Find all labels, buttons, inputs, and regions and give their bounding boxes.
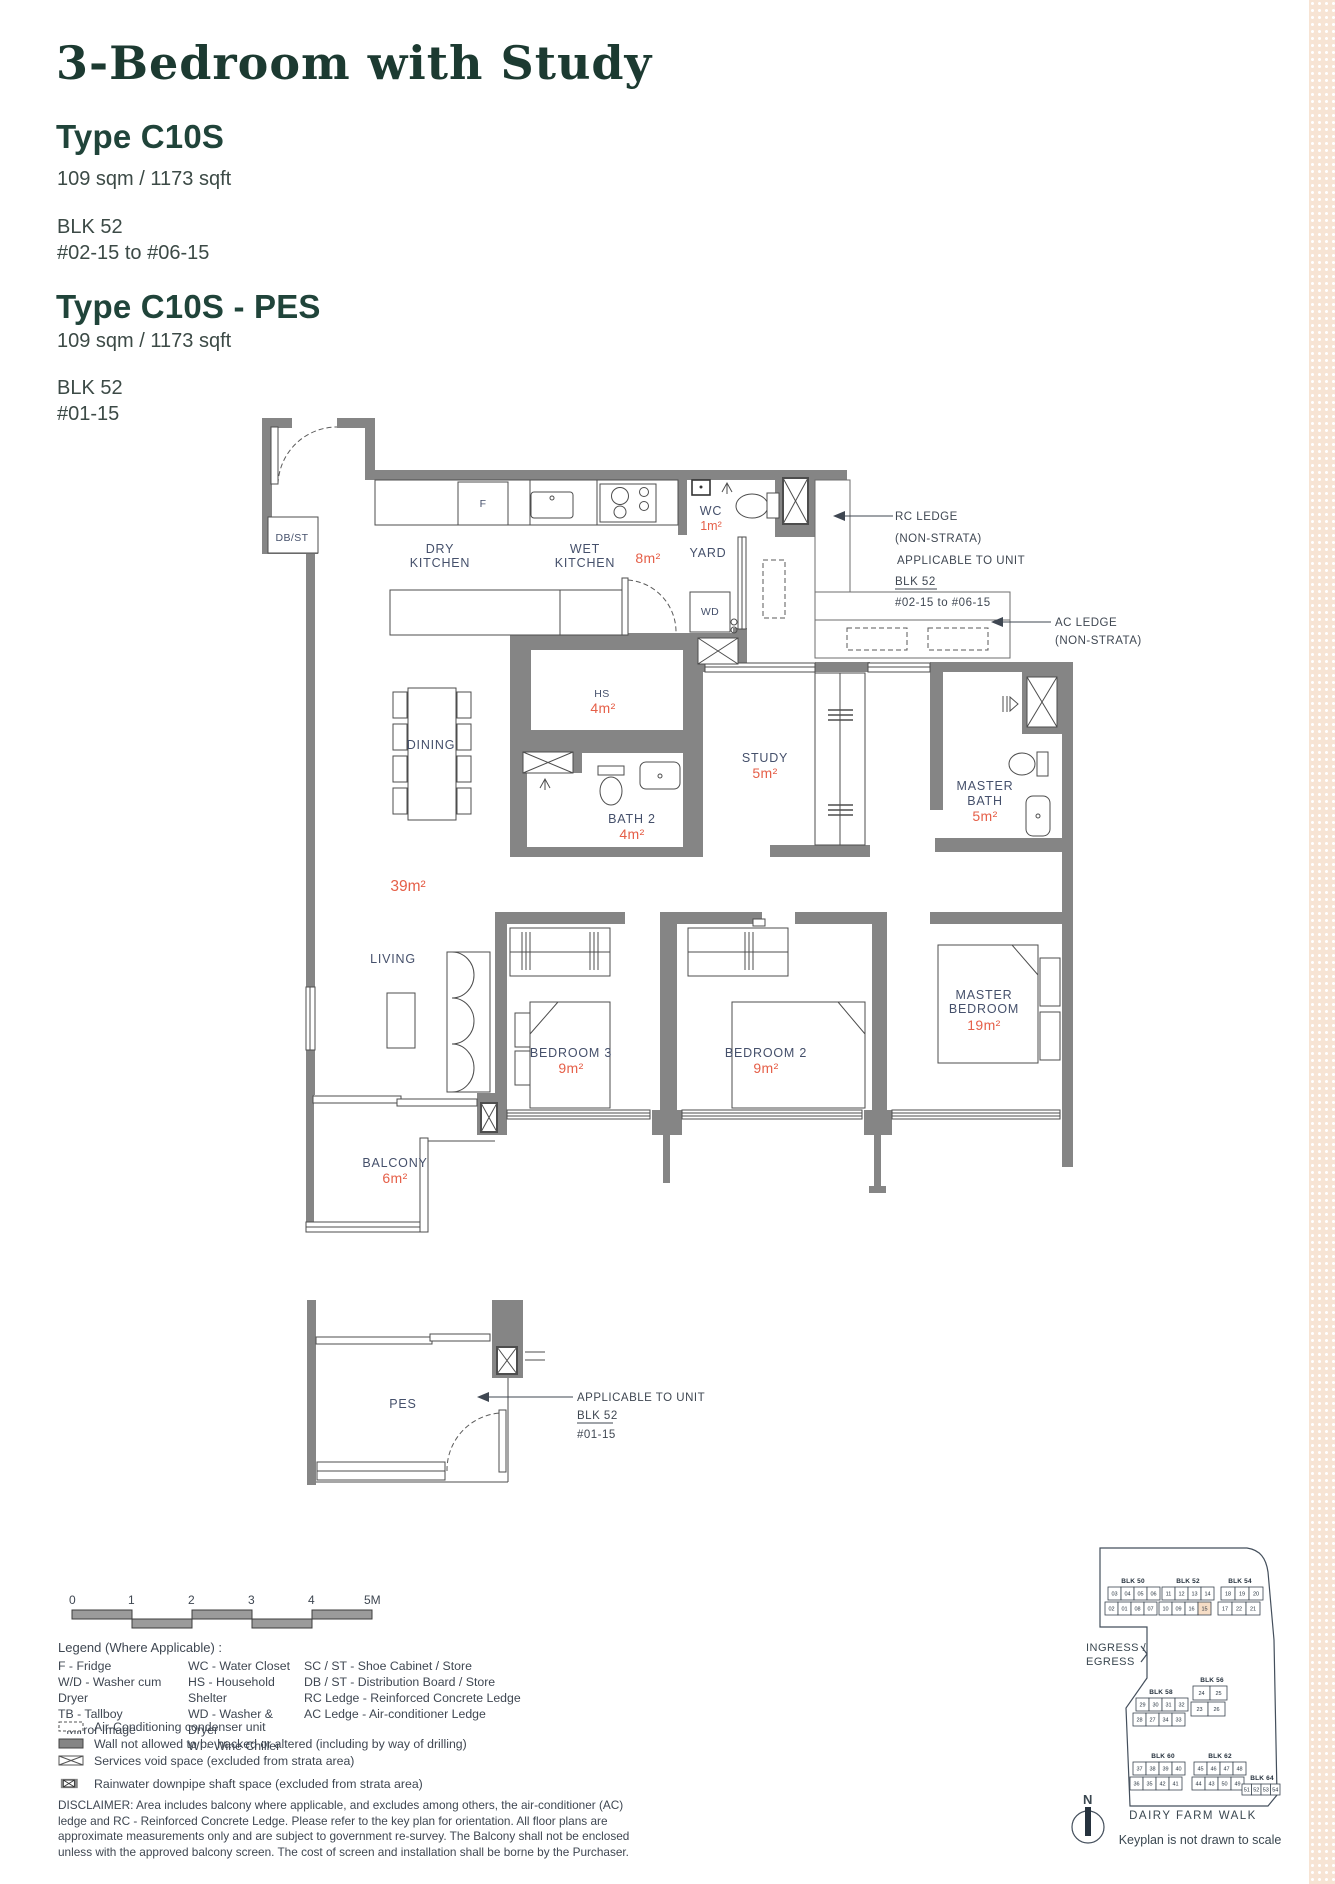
pes-note-1: APPLICABLE TO UNIT [577, 1392, 705, 1404]
pes-planter [317, 1462, 445, 1480]
keyplan-unit-number: 08 [1134, 1607, 1140, 1613]
keyplan-block-label: BLK 52 [1176, 1578, 1200, 1585]
keyplan-block-label: BLK 58 [1149, 1689, 1173, 1696]
keyplan-units: BLK 500304050602010807BLK 52111213141009… [1105, 1578, 1280, 1795]
room-label-living: LIVING [370, 952, 416, 966]
symbol-row: Services void space (excluded from strat… [58, 1752, 467, 1769]
keyplan-unit-number: 24 [1198, 1691, 1204, 1697]
rainwater-shaft [497, 1347, 517, 1374]
keyplan-unit-number: 31 [1165, 1703, 1171, 1709]
area-wet-kitchen: 8m² [635, 550, 660, 566]
room-label-db-st: DB/ST [276, 532, 309, 544]
master-bath-fixtures [1009, 752, 1050, 836]
rc-ledge-note-1: RC LEDGE [895, 511, 958, 523]
room-label-yard: YARD [689, 546, 726, 560]
legend-item: F - Fridge [58, 1658, 188, 1674]
scale-4: 4 [308, 1593, 315, 1607]
area-living-dining: 39m² [390, 878, 425, 895]
room-label-fridge: F [480, 498, 487, 510]
keyplan-unit-number: 33 [1175, 1718, 1181, 1724]
leader-arrow [477, 1392, 489, 1402]
area-bedroom3: 9m² [558, 1060, 583, 1076]
keyplan-block-label: BLK 50 [1121, 1578, 1145, 1585]
symbol-label: Wall not allowed to be hacked or altered… [94, 1737, 467, 1751]
coffee-table [387, 993, 415, 1048]
room-label-master-bedroom-1: MASTER [956, 988, 1013, 1002]
room-label-study: STUDY [742, 751, 788, 765]
services-void [698, 638, 738, 664]
area-master-bath: 5m² [972, 808, 997, 824]
dining-table [393, 688, 471, 820]
room-label-wet-kitchen-1: WET [570, 542, 600, 556]
shower [1003, 677, 1057, 727]
room-label-wc: WC [700, 504, 722, 518]
keyplan-unit-number: 21 [1250, 1607, 1256, 1613]
ac-condenser-icon [58, 1721, 84, 1732]
keyplan-unit-number: 49 [1234, 1782, 1240, 1788]
keyplan-unit-number: 44 [1195, 1782, 1201, 1788]
keyplan-unit-number: 52 [1253, 1788, 1259, 1794]
room-label-hs: HS [594, 688, 609, 700]
room-label-bath2: BATH 2 [608, 812, 656, 826]
pes-note-3: #01-15 [577, 1429, 616, 1441]
balcony-sliding-door [313, 1096, 477, 1106]
keyplan-unit-number: 18 [1225, 1592, 1231, 1598]
ac-condenser-unit [847, 628, 907, 650]
keyplan-unit-number: 46 [1210, 1767, 1216, 1773]
leader-arrow [833, 511, 845, 521]
legend-item: WC - Water Closet [188, 1658, 304, 1674]
keyplan-unit-number: 47 [1223, 1767, 1229, 1773]
wall-icon [58, 1738, 84, 1749]
rainwater-shaft [783, 478, 808, 524]
keyplan-unit-number: 10 [1162, 1607, 1168, 1613]
keyplan-unit-number: 26 [1213, 1707, 1219, 1713]
keyplan-unit-number: 30 [1152, 1703, 1158, 1709]
keyplan-unit-number: 02 [1108, 1607, 1114, 1613]
room-label-balcony: BALCONY [362, 1156, 427, 1170]
symbol-row: Air-Conditioning condenser unit [58, 1718, 467, 1735]
keyplan-unit-number: 07 [1147, 1607, 1153, 1613]
keyplan-note: Keyplan is not drawn to scale [1119, 1833, 1282, 1847]
keyplan-unit-number: 13 [1191, 1592, 1197, 1598]
keyplan-unit-number: 01 [1121, 1607, 1127, 1613]
legend-item: W/D - Washer cum Dryer [58, 1674, 188, 1706]
keyplan-unit-number: 23 [1196, 1707, 1202, 1713]
scale-0: 0 [69, 1593, 76, 1607]
ac-condenser-unit [763, 560, 785, 618]
study-wardrobe [815, 673, 865, 845]
keyplan-unit-number: 04 [1124, 1592, 1130, 1598]
keyplan-unit-number: 05 [1137, 1592, 1143, 1598]
floor-plan-svg: DB/ST F DRY KITCHEN WET KITCHEN 8m² WC 1… [0, 0, 1335, 1884]
keyplan-unit-number: 43 [1208, 1782, 1214, 1788]
keyplan-ingress-2: EGRESS [1086, 1656, 1135, 1668]
legend-item: RC Ledge - Reinforced Concrete Ledge [304, 1690, 521, 1706]
keyplan-unit-number: 11 [1166, 1592, 1172, 1598]
keyplan-unit-number: 16 [1188, 1607, 1194, 1613]
north-arrow-icon: N [1072, 1792, 1104, 1843]
keyplan-unit-number: 36 [1133, 1782, 1139, 1788]
keyplan-unit-number: 48 [1236, 1767, 1242, 1773]
keyplan-unit-number: 54 [1272, 1788, 1278, 1794]
symbol-label: Air-Conditioning condenser unit [94, 1720, 266, 1734]
room-label-pes: PES [389, 1397, 416, 1411]
room-label-master-bedroom-2: BEDROOM [949, 1002, 1019, 1016]
scale-1: 1 [128, 1593, 135, 1607]
keyplan-unit-number: 19 [1239, 1592, 1245, 1598]
keyplan-block-label: BLK 56 [1200, 1677, 1224, 1684]
keyplan-unit-number: 14 [1204, 1592, 1210, 1598]
room-label-wet-kitchen-2: KITCHEN [555, 556, 615, 570]
leader-arrow [991, 617, 1003, 627]
scale-bar: 0 1 2 3 4 5M [69, 1593, 381, 1628]
keyplan-unit-number: 28 [1136, 1718, 1142, 1724]
keyplan-unit-number: 25 [1215, 1691, 1221, 1697]
floorplan-page: 3-Bedroom with Study Type C10S 109 sqm /… [0, 0, 1335, 1884]
scale-2: 2 [188, 1593, 195, 1607]
rainwater-shaft [481, 1103, 497, 1132]
room-label-dry-kitchen-1: DRY [426, 542, 455, 556]
keyplan-unit-number: 35 [1146, 1782, 1152, 1788]
room-label-master-bath-2: BATH [967, 794, 1003, 808]
keyplan-unit-number: 38 [1149, 1767, 1155, 1773]
ac-ledge-note-1: AC LEDGE [1055, 617, 1117, 629]
cooktop [600, 484, 656, 522]
kitchen-counter [375, 480, 678, 525]
keyplan-unit-number: 17 [1222, 1607, 1228, 1613]
keyplan-street: DAIRY FARM WALK [1129, 1810, 1257, 1822]
area-master-bedroom: 19m² [967, 1017, 1001, 1033]
rc-ledge-note-3: APPLICABLE TO UNIT [897, 555, 1025, 567]
keyplan-unit-number: 50 [1221, 1782, 1227, 1788]
keyplan-unit-number: 42 [1159, 1782, 1165, 1788]
area-bath2: 4m² [619, 826, 644, 842]
rc-ledge-note-5: #02-15 to #06-15 [895, 597, 991, 609]
keyplan-block-label: BLK 64 [1250, 1775, 1274, 1782]
legend-item: SC / ST - Shoe Cabinet / Store [304, 1658, 521, 1674]
ac-condenser-unit [928, 628, 988, 650]
keyplan-unit-number: 12 [1178, 1592, 1184, 1598]
symbol-label: Services void space (excluded from strat… [94, 1754, 354, 1768]
room-label-dining: DINING [407, 738, 456, 752]
keyplan-unit-number: 40 [1175, 1767, 1181, 1773]
keyplan-unit-number: 51 [1244, 1788, 1250, 1794]
keyplan-unit-number: 09 [1175, 1607, 1181, 1613]
sofa [447, 952, 490, 1092]
keyplan-unit-number: 15 [1201, 1607, 1207, 1613]
room-label-wd: WD [701, 606, 719, 618]
keyplan-unit-number: 06 [1150, 1592, 1156, 1598]
north-label: N [1083, 1792, 1093, 1807]
bath2-floor-2 [527, 773, 582, 847]
room-label-bedroom2: BEDROOM 2 [725, 1046, 807, 1060]
keyplan-unit-number: 39 [1162, 1767, 1168, 1773]
services-void-icon [58, 1755, 84, 1766]
rc-ledge-note-4: BLK 52 [895, 576, 936, 588]
bedroom2-furniture [688, 919, 865, 1108]
keyplan-unit-number: 53 [1263, 1788, 1269, 1794]
keyplan-block-label: BLK 54 [1228, 1578, 1252, 1585]
symbol-legend: Air-Conditioning condenser unit Wall not… [58, 1718, 467, 1792]
bedroom3-furniture [510, 928, 610, 1108]
room-label-dry-kitchen-2: KITCHEN [410, 556, 470, 570]
area-study: 5m² [752, 765, 777, 781]
area-wc: 1m² [700, 519, 722, 533]
keyplan-block-label: BLK 60 [1151, 1753, 1175, 1760]
entry-door [271, 427, 337, 484]
keyplan-unit-number: 45 [1197, 1767, 1203, 1773]
kitchen-door [622, 578, 676, 635]
room-label-bedroom3: BEDROOM 3 [530, 1046, 612, 1060]
keyplan-unit-number: 27 [1149, 1718, 1155, 1724]
room-label-master-bath-1: MASTER [957, 779, 1014, 793]
keyplan: BLK 500304050602010807BLK 52111213141009… [1072, 1548, 1281, 1847]
keyplan-ingress-1: INGRESS / [1086, 1642, 1147, 1654]
services-void [523, 752, 573, 773]
pes-note-2: BLK 52 [577, 1410, 618, 1422]
kitchen-sink [531, 492, 573, 518]
rc-ledge-note-2: (NON-STRATA) [895, 533, 982, 545]
keyplan-unit-number: 37 [1136, 1767, 1142, 1773]
rainwater-shaft-icon [58, 1778, 84, 1789]
ac-ledge-note-2: (NON-STRATA) [1055, 635, 1142, 647]
keyplan-unit-number: 03 [1111, 1592, 1117, 1598]
pes-door [447, 1410, 506, 1472]
area-balcony: 6m² [382, 1170, 407, 1186]
keyplan-unit-number: 22 [1236, 1607, 1242, 1613]
keyplan-unit-number: 20 [1253, 1592, 1259, 1598]
keyplan-block-label: BLK 62 [1208, 1753, 1232, 1760]
disclaimer: DISCLAIMER: Area includes balcony where … [58, 1798, 636, 1860]
area-hs: 4m² [590, 700, 615, 716]
scale-5m: 5M [364, 1593, 381, 1607]
area-bedroom2: 9m² [753, 1060, 778, 1076]
symbol-row: Rainwater downpipe shaft space (excluded… [58, 1775, 467, 1792]
legend-heading: Legend (Where Applicable) : [58, 1640, 222, 1655]
legend-item: DB / ST - Distribution Board / Store [304, 1674, 521, 1690]
keyplan-unit-number: 29 [1139, 1703, 1145, 1709]
legend-item: HS - Household Shelter [188, 1674, 304, 1706]
symbol-label: Rainwater downpipe shaft space (excluded… [94, 1777, 423, 1791]
keyplan-unit-number: 34 [1162, 1718, 1168, 1724]
keyplan-unit-number: 32 [1178, 1703, 1184, 1709]
island-counter [390, 590, 622, 635]
scale-3: 3 [248, 1593, 255, 1607]
keyplan-unit-number: 41 [1172, 1782, 1178, 1788]
symbol-row: Wall not allowed to be hacked or altered… [58, 1735, 467, 1752]
